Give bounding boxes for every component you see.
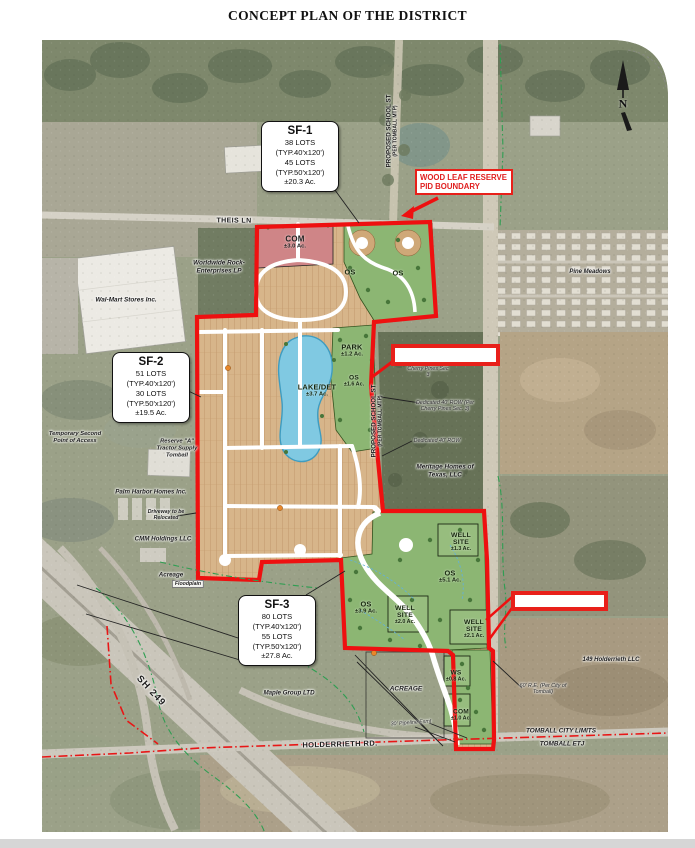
label-worldwide-rock: Worldwide Rock-Enterprises LP <box>186 259 252 274</box>
zone-label-park: PARK±1.2 Ac. <box>341 343 363 358</box>
label-acreage-west: Acreage <box>159 572 183 579</box>
road-label-proposed-school-st-north: PROPOSED SCHOOL ST (PER TOMBALL MTP) <box>386 95 399 168</box>
zone-label-os-4: OS±5.1 Ac. <box>439 569 461 584</box>
zone-label-lake-det: LAKE/DET±3.7 Ac. <box>298 383 337 398</box>
label-149-holderrieth-llc: 149 Holderrieth LLC <box>582 657 639 663</box>
label-pine-meadows: Pine Meadows <box>569 269 610 275</box>
note-60-re-city-of-tomball: 60' R.E. (Per City of Tomball) <box>519 683 567 695</box>
label-maple-group: Maple Group LTD <box>263 690 314 697</box>
note-cherry-pines: Cherry Pines Sec 3 <box>407 366 449 378</box>
zone-label-os-3: OS±1.6 Ac. <box>344 375 364 388</box>
zone-label-os-1: OS <box>344 268 355 277</box>
north-arrow-label: N <box>619 97 628 112</box>
label-walmart: Wal-Mart Stores Inc. <box>95 297 156 304</box>
label-temporary-second-access: Temporary Second Point of Access <box>48 431 102 445</box>
label-cmm-holdings: CMM Holdings LLC <box>135 536 192 543</box>
label-tomball-city-limits: TOMBALL CITY LIMITS <box>526 728 596 735</box>
zone-label-os-5: OS±3.9 Ac. <box>355 600 377 615</box>
sf1-callout-box: SF-1 38 LOTS (TYP.40'x120') 45 LOTS (TYP… <box>261 121 339 192</box>
label-floodplain: Floodplain <box>172 580 204 588</box>
note-dedicated-row-1: Dedicated 40' ROW (Per Cherry Pines Sec.… <box>415 400 475 412</box>
zone-label-com-south: COM±1.0 Ac. <box>451 709 471 722</box>
concept-plan-map-art <box>0 0 695 848</box>
zone-label-com-north: COM ±3.0 Ac. <box>284 235 306 250</box>
pid-boundary-callout-box: WOOD LEAF RESERVE PID BOUNDARY <box>415 169 513 195</box>
zone-label-well-site-center: WELL SITE ±2.0 Ac. <box>395 605 415 625</box>
label-acreage-south: ACREAGE <box>390 686 423 693</box>
label-reserve-a-tractor-supply: Reserve "A" Tractor Supply Tomball <box>152 439 202 460</box>
label-driveway-relocated: Driveway to be Relocated <box>144 509 188 521</box>
redaction-box-north <box>391 344 500 366</box>
redaction-box-south <box>511 591 608 611</box>
zone-label-ws: WS±0.8 Ac. <box>446 670 466 683</box>
sf3-callout-box: SF-3 80 LOTS (TYP.40'x120') 55 LOTS (TYP… <box>238 595 316 666</box>
label-tomball-etj: TOMBALL ETJ <box>540 741 585 748</box>
zone-label-os-2: OS <box>392 269 403 278</box>
bottom-gray-bar <box>0 839 695 848</box>
page-title: CONCEPT PLAN OF THE DISTRICT <box>0 8 695 24</box>
sf2-callout-box: SF-2 51 LOTS (TYP.40'x120') 30 LOTS (TYP… <box>112 352 190 423</box>
label-palm-harbor: Palm Harbor Homes Inc. <box>115 489 187 496</box>
road-label-proposed-school-st-mid: PROPOSED SCHOOL ST (PER TOMBALL MTP) <box>371 385 384 458</box>
label-meritage-homes: Meritage Homes of Texas, LLC <box>409 463 481 478</box>
note-dedicated-row-2: Dedicated 40' ROW <box>414 438 461 444</box>
concept-plan-page: { "title": "CONCEPT PLAN OF THE DISTRICT… <box>0 0 695 848</box>
zone-label-well-site-north: WELL SITE ±1.3 Ac. <box>451 532 471 552</box>
road-label-theis-ln: THEIS LN <box>216 217 251 224</box>
zone-label-well-site-east: WELL SITE ±2.1 Ac. <box>464 619 484 639</box>
